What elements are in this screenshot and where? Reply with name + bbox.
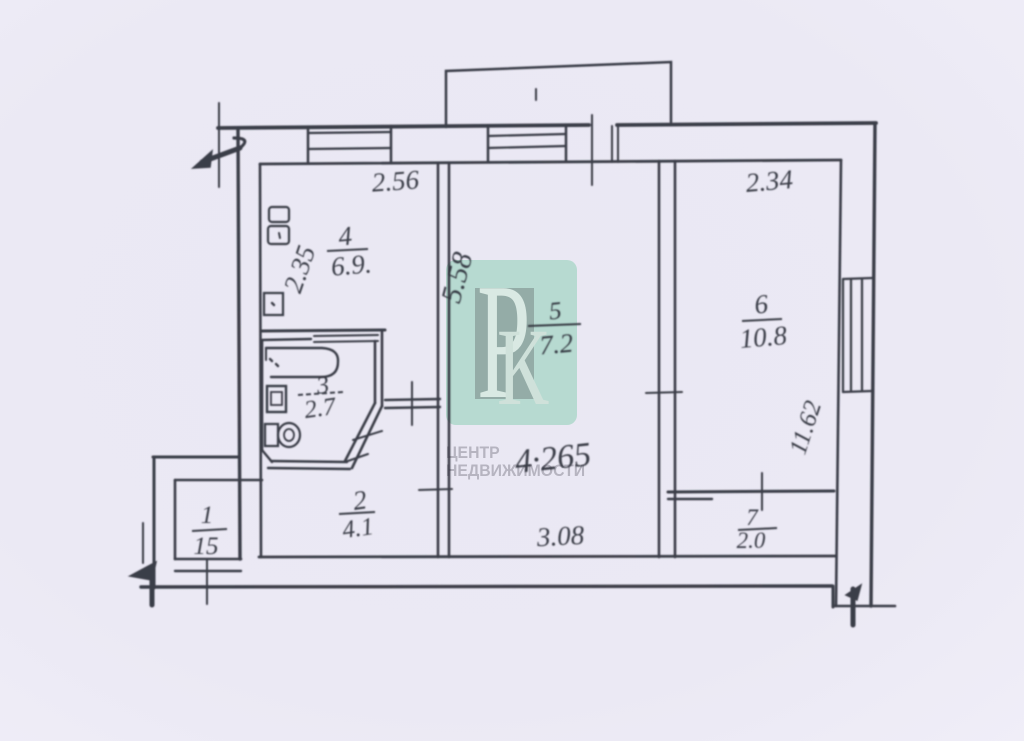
svg-text:6.9.: 6.9. [330,248,373,281]
svg-text:ЦЕНТР: ЦЕНТР [446,444,500,463]
svg-text:4: 4 [337,221,353,252]
svg-text:5: 5 [548,298,563,326]
svg-text:7: 7 [746,505,759,530]
svg-text:10.8: 10.8 [738,320,788,354]
svg-text:2.34: 2.34 [744,164,794,198]
svg-text:2.7: 2.7 [303,393,339,424]
svg-text:3.08: 3.08 [535,520,585,553]
svg-text:К: К [497,306,549,429]
svg-text:2.56: 2.56 [371,164,421,197]
svg-text:1: 1 [201,502,214,529]
svg-text:4.1: 4.1 [341,513,376,544]
svg-text:7.2: 7.2 [538,328,574,361]
svg-text:2.0: 2.0 [737,528,766,553]
svg-text:15: 15 [194,533,219,560]
